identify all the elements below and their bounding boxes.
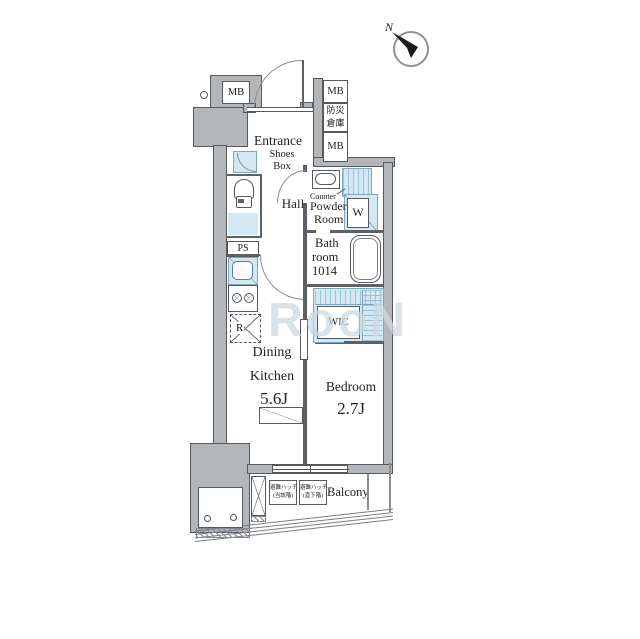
entrance-door-swing-arc (254, 60, 302, 108)
powder-room-label-line1: Powder (310, 199, 347, 213)
entrance-door-sill (247, 107, 313, 112)
wic-shelf-right (362, 290, 382, 341)
stove-burner-icon (232, 293, 242, 303)
bathroom-label-line1: Bath (312, 236, 339, 250)
disaster-storage-box: 防災 倉庫 (323, 103, 348, 132)
shoes-box-label-line2: Box (273, 161, 291, 172)
shoes-box-label: ShoesBox (262, 149, 302, 173)
wall-dot (200, 91, 208, 99)
wall-right (383, 162, 393, 465)
toilet-floor (228, 213, 258, 235)
wic-box: WIC (317, 306, 360, 339)
meter-box-right-top: MB (323, 80, 348, 103)
ground-hatch-strip (196, 528, 250, 538)
bedroom-size-label: 2.7J (331, 399, 371, 419)
bathroom-label: Bathroom1014 (312, 236, 339, 278)
disaster-storage-label-line1: 防災 (324, 104, 347, 117)
bedroom-label: Bedroom (322, 379, 380, 395)
powder-room-label-line2: Room (310, 212, 343, 226)
wall-meterbox-column (313, 78, 323, 162)
toilet-room-wall-top (227, 174, 262, 176)
dk-counter (259, 407, 303, 424)
wic-door-leaf (315, 343, 345, 344)
wall-bath-wic (306, 284, 384, 287)
entrance-door-leaf (302, 60, 304, 108)
powder-room-door-arc (277, 170, 306, 203)
toilet-room-wall-right (260, 174, 262, 238)
wall-center-upper (303, 203, 307, 319)
dk-label-line2: Kitchen (246, 369, 298, 385)
shoes-box-label-line1: Shoes (269, 149, 294, 160)
disaster-storage-label-line2: 倉庫 (324, 117, 347, 129)
hall-dk-threshold (227, 254, 260, 256)
refrigerator-space: R (230, 314, 261, 343)
entrance-label: Entrance (247, 133, 309, 149)
wall-top-left-block (193, 107, 248, 147)
floor-plan: MB MB 防災 倉庫 MB Entrance ShoesBox PS R Ha… (0, 0, 640, 639)
wall-powder-bath-right (330, 230, 384, 233)
evacuation-hatch-current-label: 避難ハッチ(当該階) (270, 481, 296, 501)
bathroom-label-line3: 1014 (312, 264, 337, 278)
window-sash-line (273, 469, 349, 470)
bathroom-label-line2: room (312, 250, 338, 264)
dk-label-line1: Dining (248, 345, 296, 361)
evacuation-hatch-current: 避難ハッチ(当該階) (269, 480, 297, 505)
powder-room-label: PowderRoom (310, 200, 347, 226)
powder-closet (342, 168, 372, 197)
toilet-room-wall-bottom (227, 236, 262, 238)
evacuation-hatch-below: 避難ハッチ(直下階) (299, 480, 327, 505)
window-mullion (310, 466, 311, 474)
hall-door-swing-arc (260, 255, 305, 300)
bathtub-icon (350, 235, 381, 283)
wall-wic-bedroom (344, 341, 384, 344)
washer-box: W (347, 198, 369, 228)
stove-box (228, 285, 258, 312)
wall-left-strip (213, 145, 227, 445)
evacuation-hatch-below-label: 避難ハッチ(直下階) (300, 481, 326, 501)
bedroom-sliding-door-leaf (300, 319, 308, 360)
wall-center-lower (303, 360, 307, 464)
meter-box-right-bottom: MB (323, 132, 348, 162)
service-dot (204, 515, 211, 522)
compass-icon: N (382, 16, 446, 80)
stove-burner-icon (244, 293, 254, 303)
service-block-inset (198, 487, 243, 528)
window-south (272, 465, 348, 473)
service-dot (230, 514, 237, 521)
toilet-handle (238, 199, 244, 203)
dk-size-label: 5.6J (254, 389, 294, 409)
compass-north-label: N (384, 20, 394, 34)
meter-box-top-left: MB (222, 81, 250, 104)
wall-powder-bath-left (306, 230, 316, 233)
bathtub-inner (353, 238, 378, 280)
refrigerator-label: R (235, 322, 244, 334)
balcony-label: Balcony (327, 485, 369, 500)
powder-sink-icon (315, 173, 336, 185)
kitchen-sink-icon (232, 261, 253, 280)
